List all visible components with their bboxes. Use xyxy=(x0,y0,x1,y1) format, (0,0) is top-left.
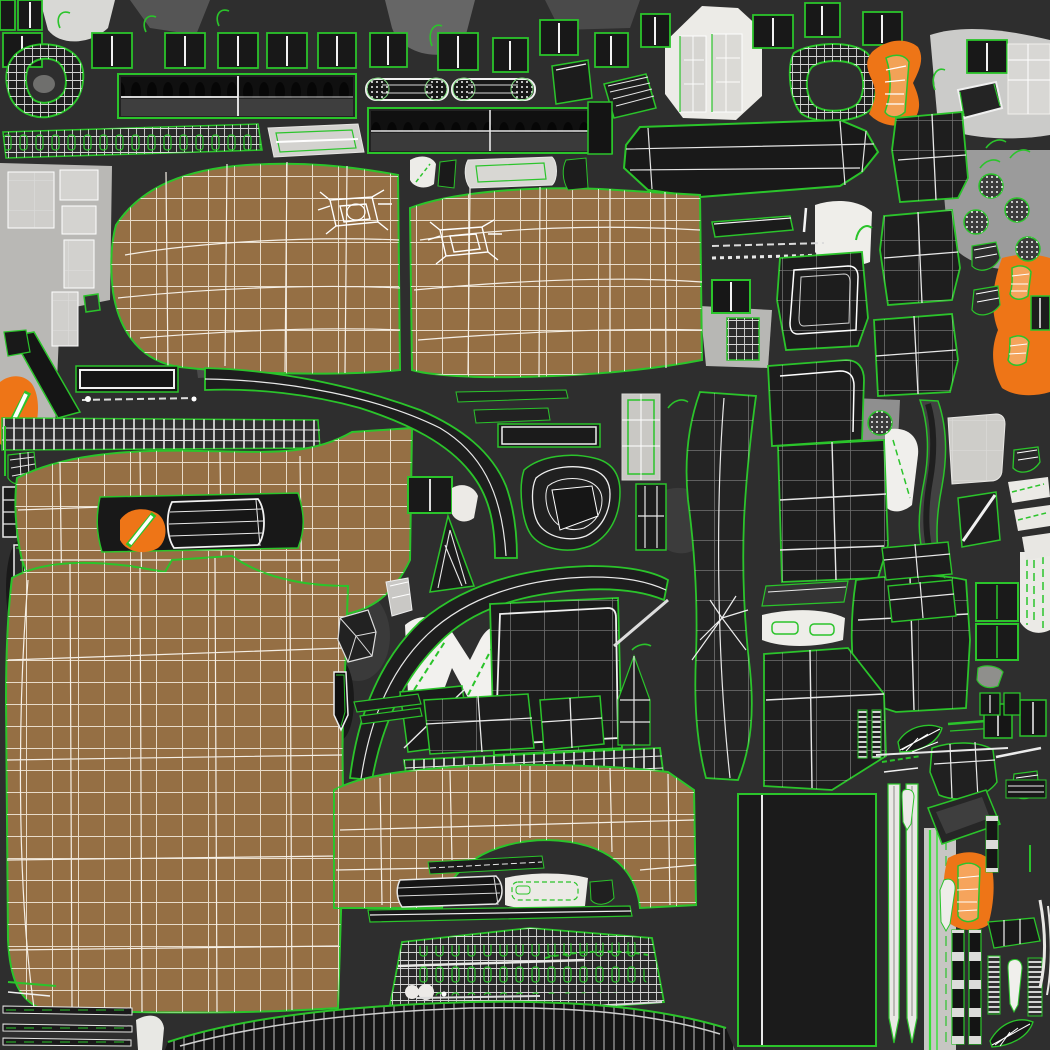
tiny-pair-2 xyxy=(1004,693,1020,715)
dark-c-piece xyxy=(563,158,588,190)
grille-blob-1 xyxy=(405,985,419,999)
uv-islands-layer xyxy=(0,0,1050,1050)
strip-bar-a-bumps xyxy=(121,77,353,98)
seal-ring-pentagon-hole xyxy=(33,75,55,93)
rocker-band-hatch xyxy=(2,418,320,450)
wire-square-l2 xyxy=(60,170,98,200)
dark-para-between xyxy=(438,160,456,188)
hatch-vent-1 xyxy=(988,956,1000,1014)
dash-stick-3-cap1 xyxy=(85,396,91,402)
plaid-rect-wire xyxy=(727,318,759,360)
wire-square-l1-wire xyxy=(8,172,54,228)
ladder-col-2-rungs xyxy=(969,930,981,1044)
speaker-disc-4-dots xyxy=(1016,237,1040,261)
dash-stick-3-cap2 xyxy=(192,397,197,402)
big-dark-rect xyxy=(738,794,876,1046)
capsule-rod-1-end-r xyxy=(425,78,447,100)
ladder-col-1-rungs xyxy=(952,930,964,1044)
speaker-disc-3-dots xyxy=(1005,198,1029,222)
white-blob-between xyxy=(410,157,436,188)
speaker-disc-5-dots xyxy=(868,411,892,435)
uv-texture-atlas xyxy=(0,0,1050,1050)
bg-white-fender-plate xyxy=(505,874,588,909)
orange-ladder-2 xyxy=(1008,336,1029,365)
arch-strip-2 xyxy=(474,408,550,423)
lower-grille-slots xyxy=(415,942,648,996)
orange-ladder-1 xyxy=(1010,266,1031,299)
dark-sq-piece xyxy=(588,102,612,154)
wire-square-l4-wire xyxy=(64,240,94,288)
capsule-rod-2-end-l xyxy=(453,78,475,100)
wire-square-l3 xyxy=(62,206,96,234)
tall-light-rect-wire xyxy=(52,292,78,346)
muffler xyxy=(397,876,502,907)
sill-boat xyxy=(624,120,878,197)
right-edge-rect xyxy=(1006,780,1046,798)
tall-block xyxy=(636,484,666,550)
bucket-fender xyxy=(590,880,614,904)
green-diamond xyxy=(84,294,100,312)
orange-bottom-right-band xyxy=(958,863,980,921)
bg-white-handle-plate xyxy=(762,610,845,646)
speaker-disc-1-dots xyxy=(979,174,1003,198)
strip-bar-a-lower xyxy=(121,99,353,116)
house-window-2 xyxy=(712,34,742,112)
light-square-r-wire xyxy=(948,414,1005,484)
light-plate-2 xyxy=(465,157,556,188)
ladder-small-edge-rungs xyxy=(986,816,998,872)
hatch-bar-1 xyxy=(858,710,867,758)
bg-white-tall-right xyxy=(1020,552,1050,633)
hatch-bar-2 xyxy=(872,710,881,758)
door-panel-2-grid xyxy=(410,188,702,377)
capsule-rod-1-end-l xyxy=(367,78,389,100)
speaker-disc-2-dots xyxy=(964,210,988,234)
roof-panel-grid xyxy=(6,556,348,1013)
door-panel-1-grid xyxy=(111,164,400,374)
white-diag-3 xyxy=(1022,533,1050,560)
grille-blob-dot xyxy=(442,992,447,997)
uv-rect-a17 xyxy=(0,0,15,30)
window-frame-a-wire xyxy=(777,252,868,350)
black-band-2 xyxy=(4,330,30,356)
capsule-rod-2-end-r xyxy=(511,78,533,100)
bg-white-bottom-left xyxy=(136,1016,164,1050)
white-blob-tri xyxy=(452,485,478,521)
gray-curl xyxy=(977,666,1003,688)
light-rect-top-right xyxy=(1008,44,1050,114)
uv-atlas-canvas xyxy=(0,0,1050,1050)
